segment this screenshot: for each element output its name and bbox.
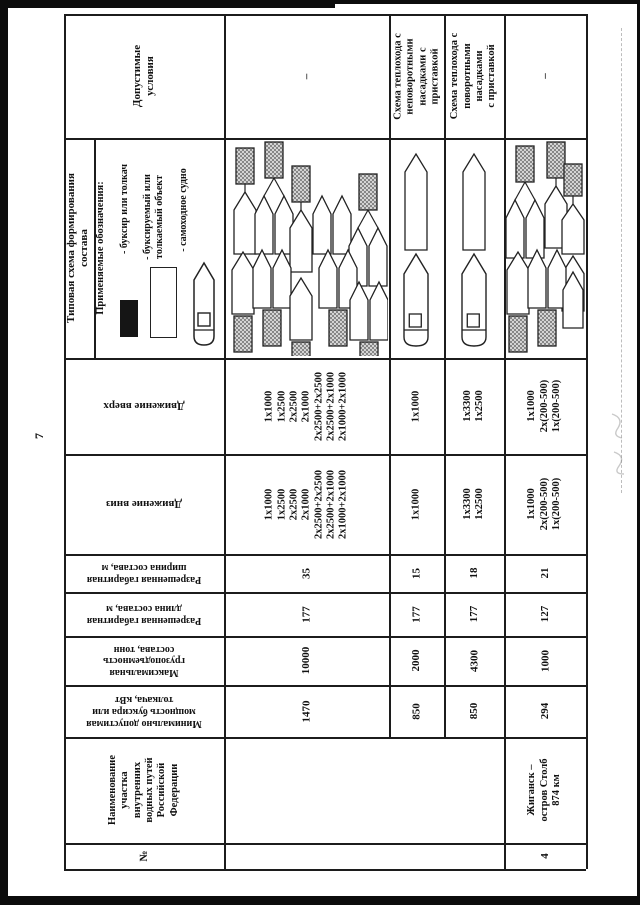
scheme-diagram-row4 <box>505 140 585 356</box>
cell-movement-down-row3: 1x3300 1x2500 <box>444 454 504 554</box>
header-allowed-length: Разрешенная габаритная длина состава, м <box>64 592 224 636</box>
cell-length-row1: 177 <box>224 592 389 636</box>
grid-vline <box>64 14 66 869</box>
grid-vline <box>389 14 391 737</box>
header-movement-down: Движение вниз <box>64 454 224 554</box>
header-number: № <box>64 843 224 869</box>
scheme-diagram-row2 <box>390 140 443 356</box>
cell-power-row1: 1470 <box>224 685 389 737</box>
grid-vline <box>94 138 96 358</box>
cell-capacity-row3: 4300 <box>444 636 504 685</box>
grid-vline <box>504 14 506 869</box>
scan-edge-bottom <box>0 896 640 905</box>
grid-vline <box>444 14 446 737</box>
grid-hline <box>64 554 586 556</box>
cell-power-row2: 850 <box>389 685 444 737</box>
scan-edge-top-left-segment <box>0 0 335 8</box>
cell-movement-up-row3: 1x3300 1x2500 <box>444 358 504 454</box>
cell-movement-down-row2: 1x1000 <box>389 454 444 554</box>
tug-symbol-icon <box>120 300 138 337</box>
cell-power-row4: 294 <box>504 685 586 737</box>
header-allowed-conditions: Допустимые условия <box>64 14 224 138</box>
cell-width-row3: 18 <box>444 554 504 592</box>
grid-hline <box>64 358 586 360</box>
cell-movement-down-row1: 1x1000 1x2500 2x2500 2x1000 2x2500+2x250… <box>224 454 389 554</box>
grid-hline <box>64 454 586 456</box>
handwriting-scribble <box>604 408 636 480</box>
scheme-diagram-row1 <box>225 140 388 356</box>
cell-length-row3: 177 <box>444 592 504 636</box>
cell-movement-up-row4: 1x1000 2x(200-500) 1x(200-500) <box>504 358 586 454</box>
cell-movement-up-row2: 1x1000 <box>389 358 444 454</box>
cell-section-name-row4: Жиганск – остров Столб 874 км <box>504 737 586 843</box>
grid-hline <box>64 737 586 739</box>
legend-label-self-propelled: - самоходное судно <box>172 140 196 280</box>
grid-hline <box>64 636 586 638</box>
header-scheme-title: Типовая схема формирования состава <box>64 138 92 358</box>
cell-power-row3: 850 <box>444 685 504 737</box>
grid-vline <box>224 14 226 869</box>
cell-movement-up-row1: 1x1000 1x2500 2x2500 2x1000 2x2500+2x250… <box>224 358 389 454</box>
cell-width-row1: 35 <box>224 554 389 592</box>
cell-conditions-row2: Схема теплохода с неповоротными насадкам… <box>389 14 444 138</box>
cell-capacity-row1: 10000 <box>224 636 389 685</box>
grid-hline <box>64 685 586 687</box>
cell-width-row2: 15 <box>389 554 444 592</box>
grid-hline <box>64 138 586 140</box>
header-movement-up: Движение вверх <box>64 358 224 454</box>
legend-label-tug: - буксир или толкач <box>112 140 138 278</box>
cell-capacity-row4: 1000 <box>504 636 586 685</box>
cell-capacity-row2: 2000 <box>389 636 444 685</box>
cell-length-row4: 127 <box>504 592 586 636</box>
header-allowed-width: Разрешенная габаритная ширина состава, м <box>64 554 224 592</box>
grid-hline <box>64 592 586 594</box>
grid-hline <box>64 843 586 845</box>
cell-conditions-row1: – <box>224 14 389 138</box>
grid-hline <box>64 869 586 871</box>
towed-object-symbol-icon <box>150 267 177 338</box>
header-min-power: Минимально допустимая мощность буксира и… <box>64 685 224 737</box>
grid-hline <box>64 14 586 16</box>
cell-conditions-row3: Схема теплохода с поворотными насадками … <box>444 14 504 138</box>
self-propelled-symbol-icon <box>192 261 216 347</box>
header-max-capacity: Максимальная грузоподъемность состава, т… <box>64 636 224 685</box>
scheme-diagram-row3 <box>445 140 503 356</box>
cell-width-row4: 21 <box>504 554 586 592</box>
header-section-name: Наименование участка внутренних водных п… <box>64 737 224 843</box>
grid-vline <box>586 14 588 869</box>
scanned-document-page: 7 Допустимые условия Типовая схема форми… <box>0 0 640 905</box>
cell-conditions-row4: – <box>504 14 586 138</box>
page-number: 7 <box>28 425 50 447</box>
cell-number-row4: 4 <box>504 843 586 869</box>
cell-length-row2: 177 <box>389 592 444 636</box>
scan-edge-left <box>0 0 8 898</box>
cell-movement-down-row4: 1x1000 2x(200-500) 1x(200-500) <box>504 454 586 554</box>
